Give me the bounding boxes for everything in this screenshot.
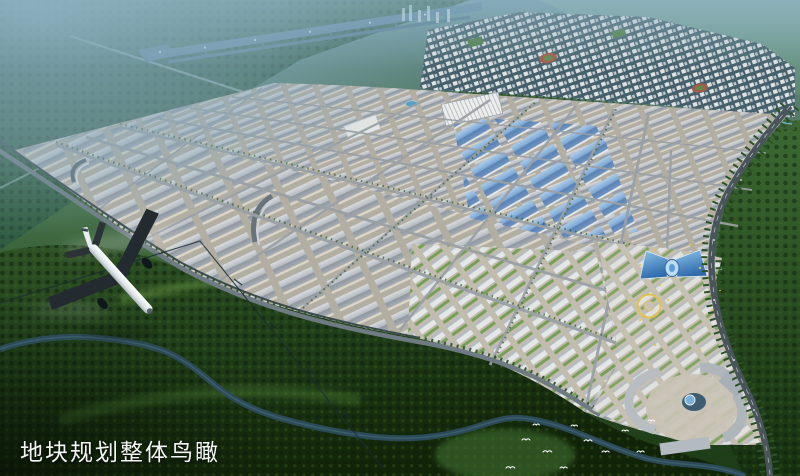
mall-dome xyxy=(685,395,695,405)
airplane-shadow xyxy=(82,324,158,340)
rendering-canvas: 地块规划整体鸟瞰 xyxy=(0,0,800,476)
master-plan-rendering xyxy=(0,0,800,476)
caption-text: 地块规划整体鸟瞰 xyxy=(20,433,220,467)
